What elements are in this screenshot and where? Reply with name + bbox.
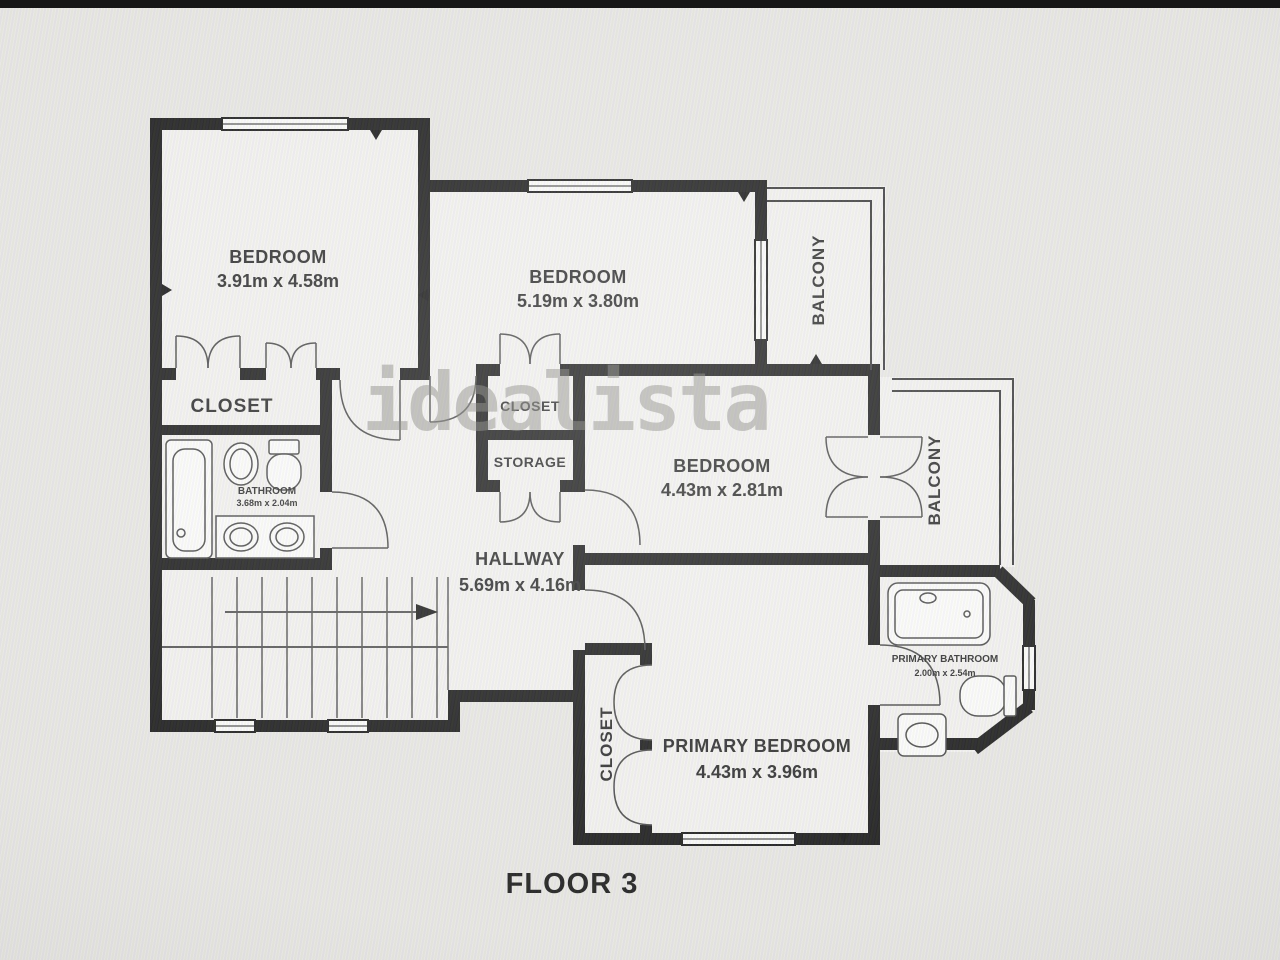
closet-mid-label: CLOSET bbox=[500, 398, 560, 414]
bedroom-3-label: BEDROOM bbox=[673, 456, 771, 476]
storage-label: STORAGE bbox=[494, 454, 566, 470]
primary-toilet-icon bbox=[960, 676, 1006, 716]
closet-left-label: CLOSET bbox=[190, 396, 273, 417]
floor-plan: BEDROOM 3.91m x 4.58m BEDROOM 5.19m x 3.… bbox=[0, 0, 1280, 960]
bathroom-dims: 3.68m x 2.04m bbox=[236, 498, 297, 508]
hallway-label: HALLWAY bbox=[475, 549, 565, 569]
bidet-icon bbox=[269, 440, 299, 454]
balcony-mid-floor bbox=[880, 377, 1015, 567]
bedroom-1-label: BEDROOM bbox=[229, 247, 327, 267]
floor-caption: FLOOR 3 bbox=[506, 868, 639, 900]
bathroom-label: BATHROOM bbox=[238, 486, 296, 497]
bedroom-3-dims: 4.43m x 2.81m bbox=[661, 480, 783, 500]
primary-bathroom-label: PRIMARY BATHROOM bbox=[892, 654, 998, 665]
hallway-dims: 5.69m x 4.16m bbox=[459, 575, 581, 595]
primary-bedroom-dims: 4.43m x 3.96m bbox=[696, 762, 818, 782]
primary-bedroom-label: PRIMARY BEDROOM bbox=[663, 736, 852, 756]
balcony-top-label: BALCONY bbox=[809, 234, 828, 325]
balcony-mid-label: BALCONY bbox=[925, 434, 944, 525]
primary-bathroom-dims: 2.00m x 2.54m bbox=[914, 668, 975, 678]
bedroom-2-label: BEDROOM bbox=[529, 267, 627, 287]
bedroom-2-dims: 5.19m x 3.80m bbox=[517, 291, 639, 311]
closet-primary-label: CLOSET bbox=[597, 707, 616, 782]
bedroom-1-dims: 3.91m x 4.58m bbox=[217, 271, 339, 291]
floor-plan-photo: BEDROOM 3.91m x 4.58m BEDROOM 5.19m x 3.… bbox=[0, 0, 1280, 960]
